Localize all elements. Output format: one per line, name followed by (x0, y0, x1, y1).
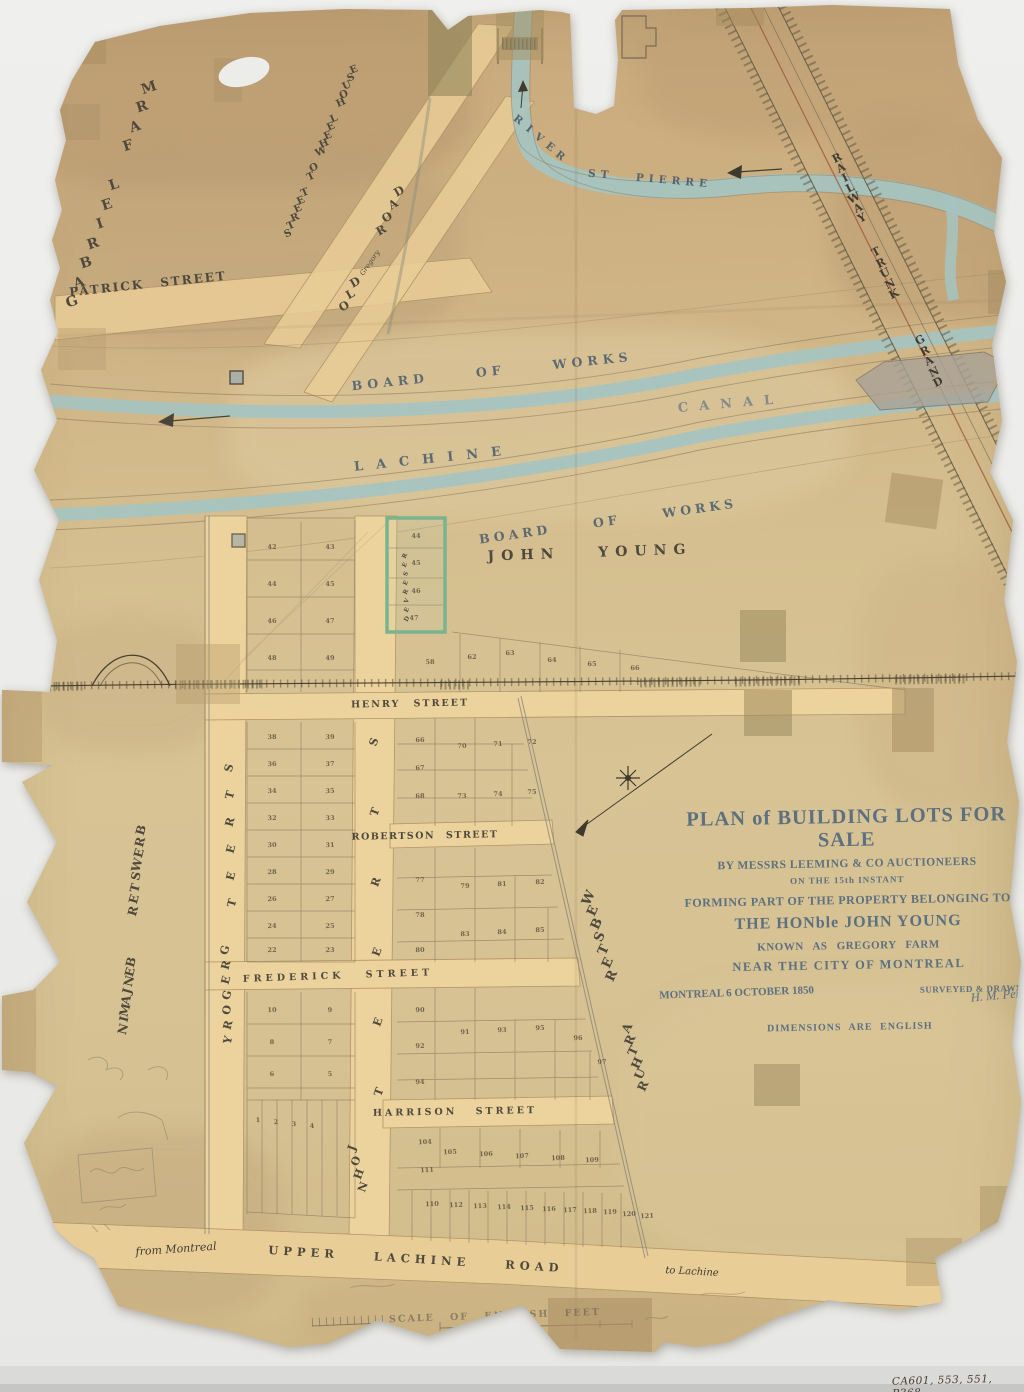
lot-number: 107 (515, 1152, 529, 1160)
scanned-map-document: GABRIELFARMPATRICK STREETSTREETTOWHEELHO… (0, 0, 1024, 1392)
lot-number: 97 (597, 1058, 606, 1066)
lot-number: 85 (535, 926, 544, 934)
lot-number: 45 (325, 580, 334, 588)
lot-number: 105 (443, 1148, 457, 1156)
lot-number: 1 (256, 1116, 261, 1124)
lot-number: 34 (267, 787, 276, 795)
lot-number: 75 (527, 788, 536, 796)
lot-number: 95 (535, 1024, 544, 1032)
lot-number: 113 (473, 1202, 487, 1210)
lot-number: 44 (411, 532, 420, 540)
lot-number: 109 (585, 1156, 599, 1164)
lot-number: 78 (415, 911, 424, 919)
lot-number: 5 (328, 1070, 333, 1078)
title-line-7: NEAR THE CITY OF MONTREAL (659, 955, 1024, 977)
lot-number: 33 (325, 814, 334, 822)
lot-number: 42 (267, 543, 276, 551)
lot-number: 106 (479, 1150, 493, 1158)
lot-number: 73 (457, 792, 466, 800)
title-line-4: FORMING PART OF THE PROPERTY BELONGING T… (658, 890, 1024, 912)
lot-number: 92 (415, 1042, 424, 1050)
title-line-2: BY MESSRS LEEMING & CO AUCTIONEERS (657, 855, 1024, 874)
lot-number: 121 (640, 1212, 654, 1220)
lot-number: 43 (325, 543, 334, 551)
title-line-5: THE HONble JOHN YOUNG (658, 911, 1024, 936)
title-line-6: KNOWN AS GREGORY FARM (658, 937, 1024, 956)
lot-number: 36 (267, 760, 276, 768)
lot-number: 63 (505, 649, 514, 657)
lot-number: 119 (603, 1208, 617, 1216)
lot-number: 70 (457, 742, 466, 750)
title-dateline: MONTREAL 6 OCTOBER 1850 (659, 984, 814, 1001)
lot-number: 112 (449, 1201, 463, 1209)
lot-number: 68 (415, 792, 424, 800)
lot-number: 114 (497, 1203, 511, 1211)
lot-number: 72 (527, 738, 536, 746)
lot-number: 3 (292, 1120, 297, 1128)
lot-number: 65 (587, 660, 596, 668)
title-line-3: ON THE 15th INSTANT (657, 872, 1024, 889)
lot-number: 66 (415, 736, 424, 744)
lot-number: 26 (267, 895, 276, 903)
lot-number: 116 (542, 1205, 556, 1213)
lot-number: 108 (551, 1154, 565, 1162)
lot-number: 25 (325, 922, 334, 930)
lot-number: 82 (535, 878, 544, 886)
map-paper: GABRIELFARMPATRICK STREETSTREETTOWHEELHO… (0, 0, 1024, 1392)
map-paper-wrap: GABRIELFARMPATRICK STREETSTREETTOWHEELHO… (0, 0, 1024, 1392)
lot-number: 4 (310, 1122, 315, 1130)
lot-number: 67 (415, 764, 424, 772)
title-block: PLAN of BUILDING LOTS FOR SALE BY MESSRS… (656, 803, 1024, 1037)
lot-number: 62 (467, 653, 476, 661)
lot-number: 104 (418, 1138, 432, 1146)
lot-number: 66 (630, 664, 639, 672)
title-line-1: PLAN of BUILDING LOTS FOR SALE (656, 803, 1024, 856)
lot-number: 46 (267, 617, 276, 625)
lot-number: 6 (270, 1070, 275, 1078)
lot-number: 110 (425, 1200, 439, 1208)
lot-number: 118 (583, 1207, 597, 1215)
lot-number: 96 (573, 1034, 582, 1042)
lot-number: 39 (325, 733, 334, 741)
lot-number: 58 (425, 658, 434, 666)
archival-reference-note: CA601, 553, 551, P368 (892, 1372, 1024, 1392)
lot-number: 115 (520, 1204, 534, 1212)
lot-number: 10 (267, 1006, 276, 1014)
lot-number: 8 (270, 1038, 275, 1046)
lot-number: 84 (497, 928, 506, 936)
lot-number: 83 (460, 930, 469, 938)
lot-number: 30 (267, 841, 276, 849)
lot-number: 28 (267, 868, 276, 876)
lot-number: 91 (460, 1028, 469, 1036)
lot-number: 32 (267, 814, 276, 822)
lot-number: 29 (325, 868, 334, 876)
lot-number: 93 (497, 1026, 506, 1034)
lot-number: 23 (325, 946, 334, 954)
lot-number: 117 (563, 1206, 577, 1214)
lot-number: 9 (328, 1006, 333, 1014)
lot-number: 64 (547, 656, 556, 664)
lot-number: 2 (274, 1118, 279, 1126)
lot-number: 81 (497, 880, 506, 888)
lot-numbers-layer: 4243444546474849444546475862636465666667… (0, 0, 1024, 1392)
lot-number: 46 (411, 587, 420, 595)
lot-number: 45 (411, 559, 420, 567)
lot-number: 48 (267, 654, 276, 662)
lot-number: 27 (325, 895, 334, 903)
lot-number: 47 (325, 617, 334, 625)
lot-number: 77 (415, 876, 424, 884)
lot-number: 7 (328, 1038, 333, 1046)
lot-number: 24 (267, 922, 276, 930)
lot-number: 94 (415, 1078, 424, 1086)
lot-number: 49 (325, 654, 334, 662)
lot-number: 38 (267, 733, 276, 741)
lot-number: 35 (325, 787, 334, 795)
lot-number: 79 (460, 882, 469, 890)
lot-number: 74 (493, 790, 502, 798)
lot-number: 111 (420, 1166, 434, 1174)
lot-number: 80 (415, 946, 424, 954)
lot-number: 120 (622, 1210, 636, 1218)
lot-number: 31 (325, 841, 334, 849)
lot-number: 90 (415, 1006, 424, 1014)
lot-number: 37 (325, 760, 334, 768)
lot-number: 44 (267, 580, 276, 588)
lot-number: 22 (267, 946, 276, 954)
lot-number: 71 (493, 740, 502, 748)
lot-number: 47 (409, 614, 418, 622)
